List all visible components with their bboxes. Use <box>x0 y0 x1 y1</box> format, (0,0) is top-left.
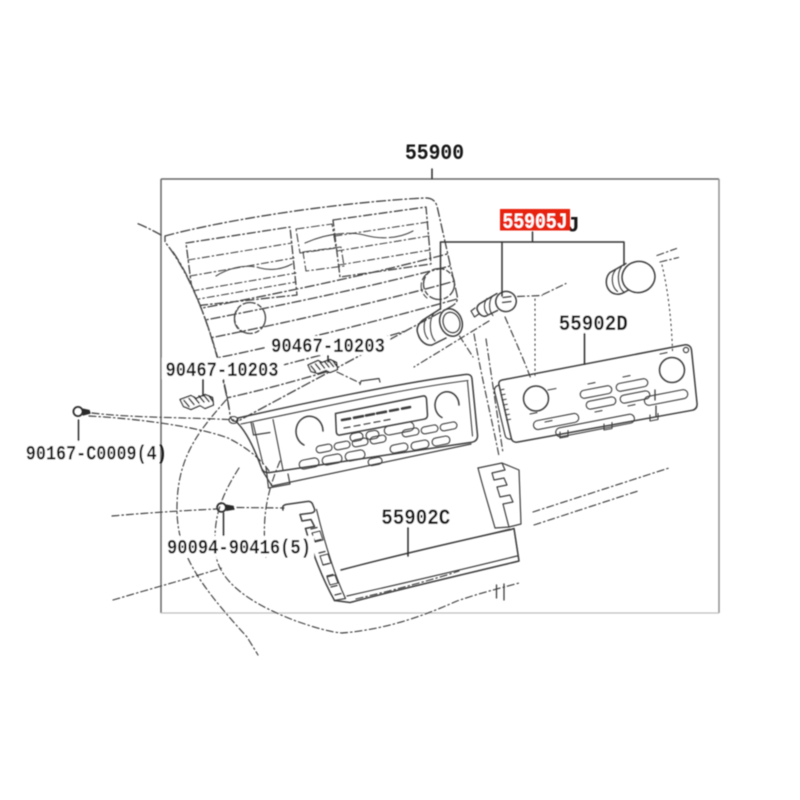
svg-text:90467-10203: 90467-10203 <box>271 336 385 359</box>
svg-text:55902C: 55902C <box>381 505 450 531</box>
svg-text:55900: 55900 <box>405 140 464 166</box>
svg-text:90167-C0009(4): 90167-C0009(4) <box>26 444 167 467</box>
svg-text:90094-90416(5): 90094-90416(5) <box>167 538 311 561</box>
svg-text:55902D: 55902D <box>559 311 628 337</box>
svg-text:55905J: 55905J <box>503 209 568 235</box>
svg-text:90467-10203: 90467-10203 <box>166 360 279 383</box>
